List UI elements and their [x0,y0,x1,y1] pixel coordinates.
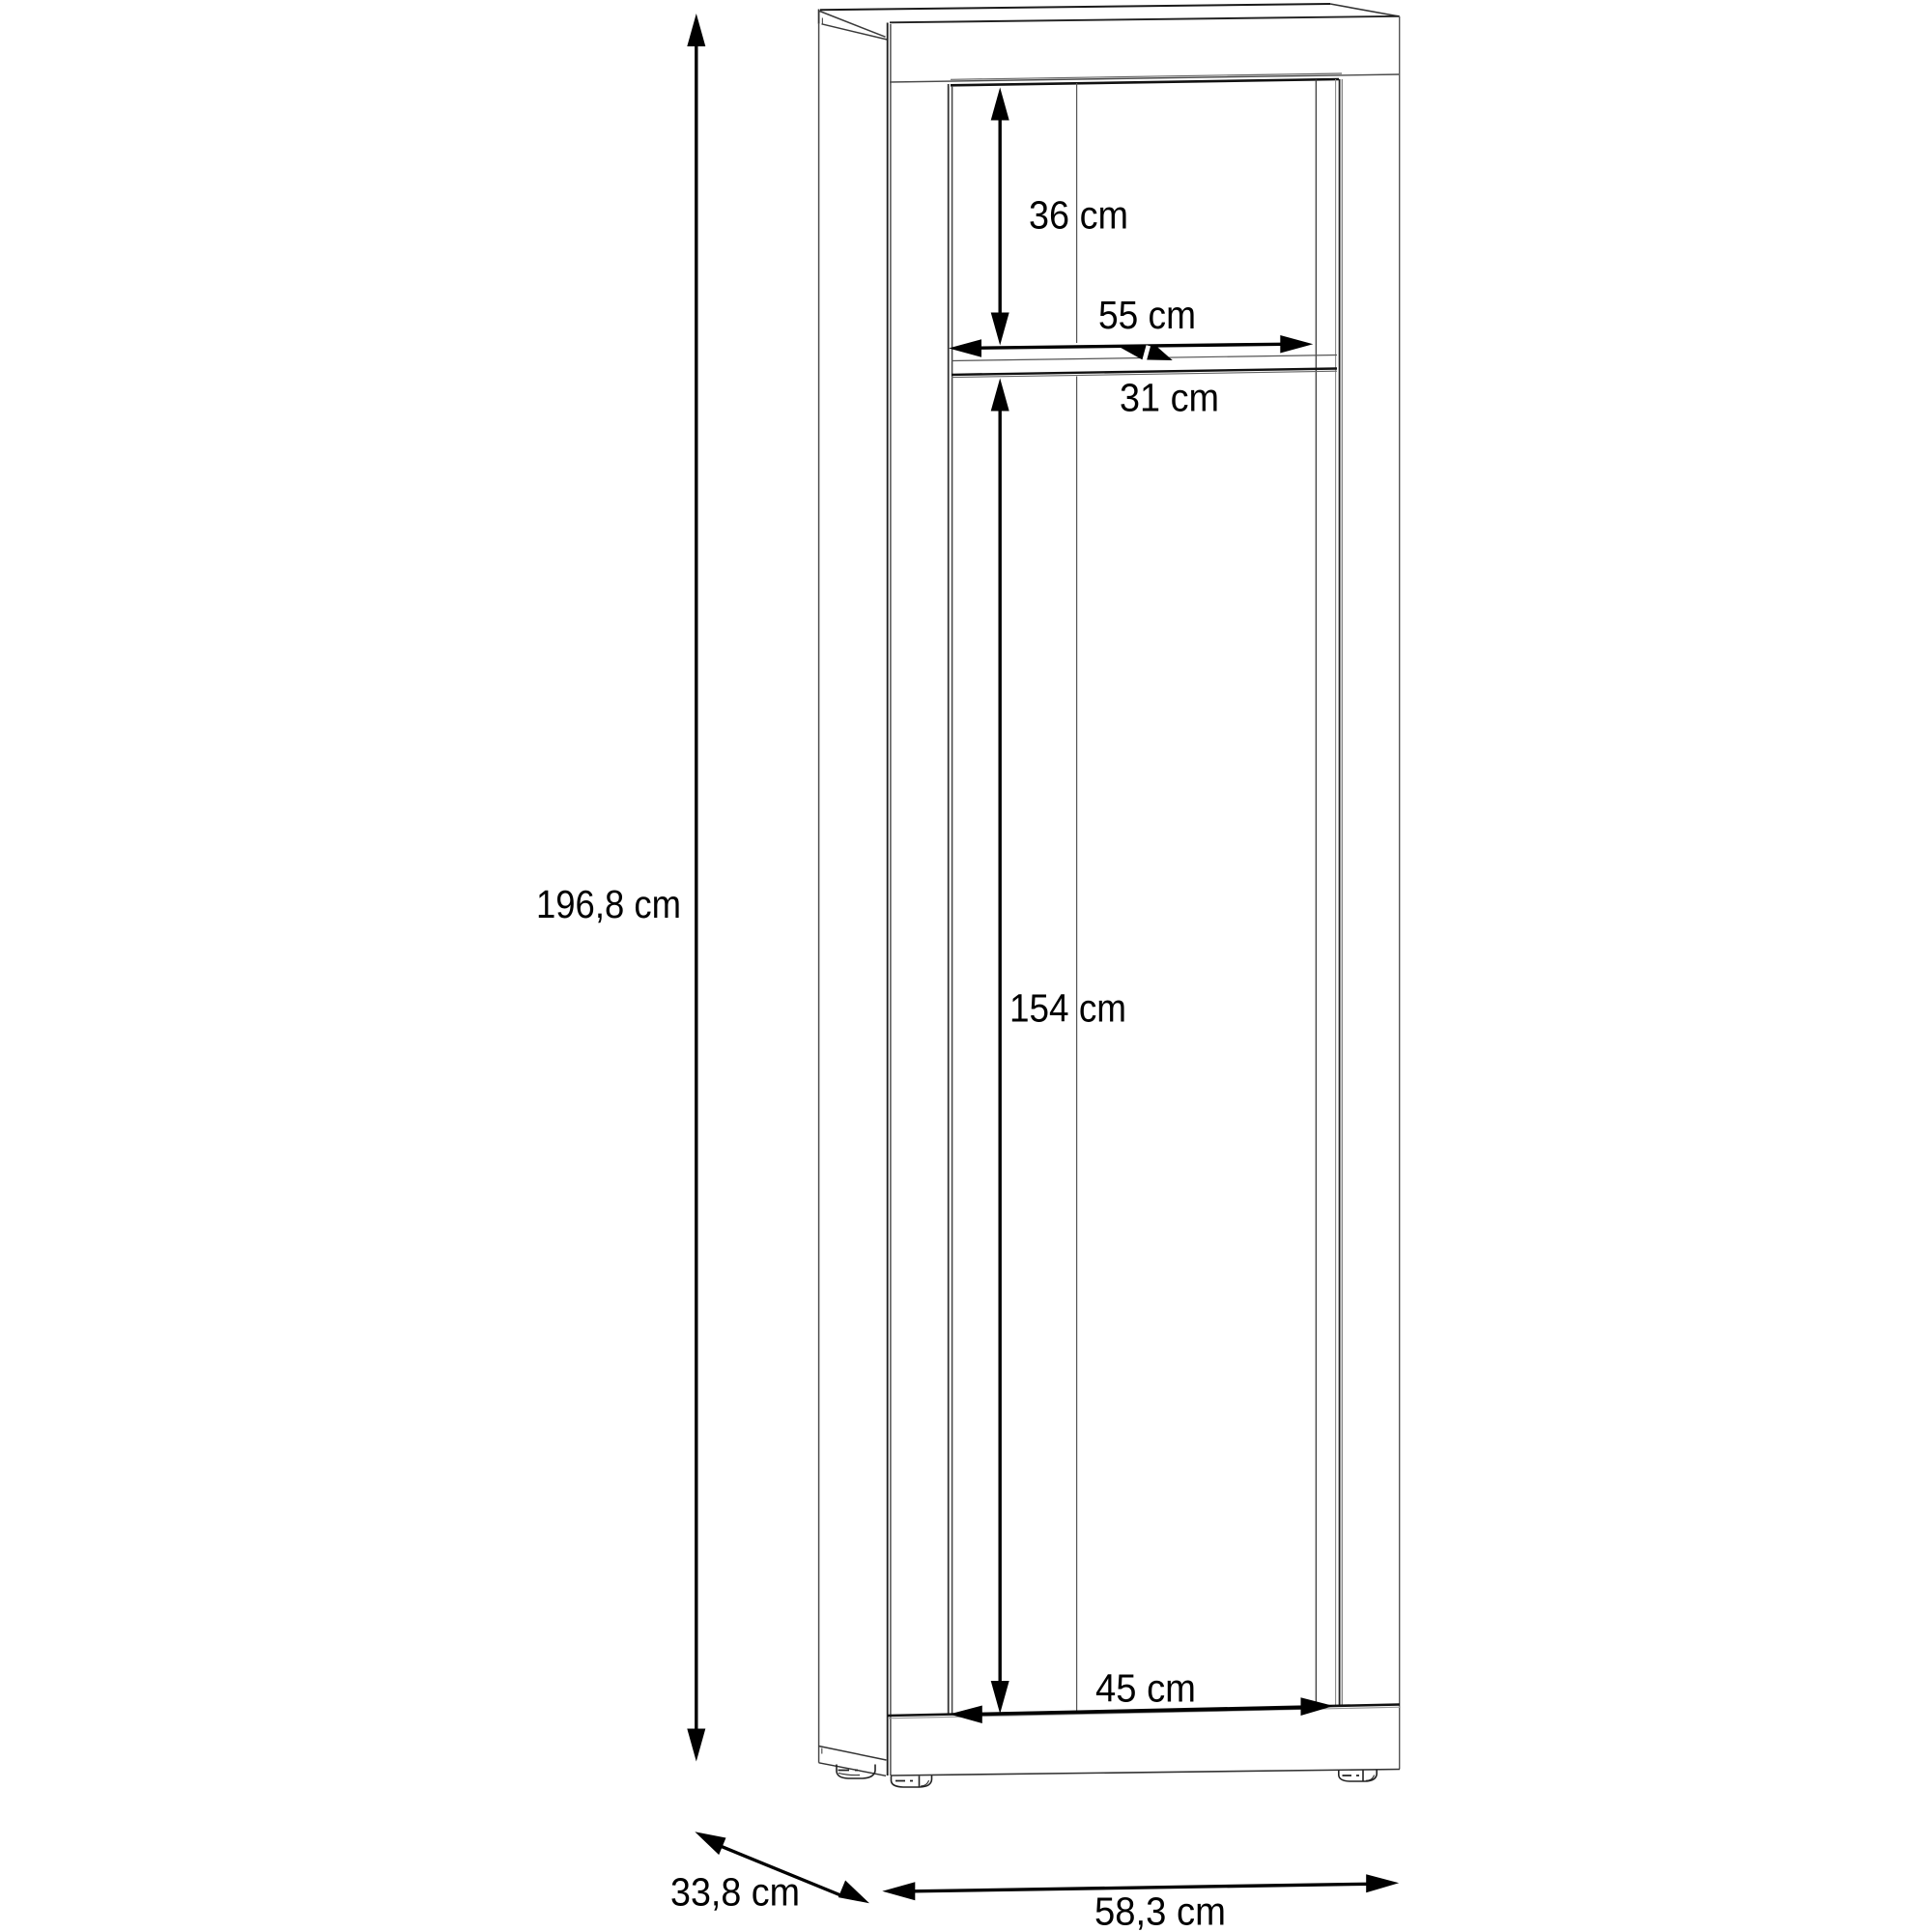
svg-text:31 cm: 31 cm [1120,376,1219,420]
svg-text:154 cm: 154 cm [1009,985,1126,1030]
svg-text:55 cm: 55 cm [1098,293,1196,337]
svg-text:36 cm: 36 cm [1029,193,1128,238]
svg-text:196,8 cm: 196,8 cm [536,882,681,926]
svg-text:33,8 cm: 33,8 cm [670,1870,800,1915]
svg-text:45 cm: 45 cm [1095,1666,1196,1711]
svg-text:58,3 cm: 58,3 cm [1094,1889,1226,1932]
